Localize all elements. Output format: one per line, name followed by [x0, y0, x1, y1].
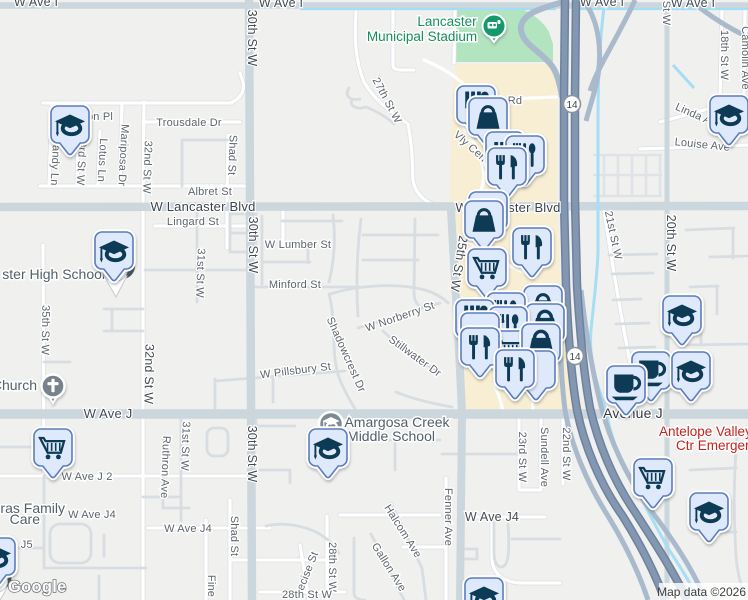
- svg-text:W Ave J4: W Ave J4: [465, 510, 519, 524]
- svg-text:Church: Church: [0, 377, 37, 393]
- svg-text:W Ave I: W Ave I: [580, 0, 624, 9]
- svg-text:30th St W: 30th St W: [246, 217, 260, 274]
- svg-text:30th St W: 30th St W: [245, 426, 259, 483]
- svg-text:Albret St: Albret St: [188, 186, 232, 198]
- svg-text:Middle School: Middle School: [347, 428, 435, 444]
- svg-text:31st St W: 31st St W: [178, 421, 192, 471]
- svg-text:14: 14: [566, 100, 578, 111]
- svg-text:St W: St W: [660, 1, 672, 26]
- svg-text:W Ave J 2: W Ave J 2: [61, 471, 112, 483]
- svg-text:W Ave I: W Ave I: [671, 0, 715, 10]
- svg-text:Lotus Ln: Lotus Ln: [95, 138, 109, 182]
- svg-text:Camolin Ave: Camolin Ave: [739, 26, 748, 90]
- svg-text:18th St W: 18th St W: [718, 30, 730, 81]
- svg-text:Sundell Ave: Sundell Ave: [538, 427, 550, 487]
- svg-text:Ctr Emergency: Ctr Emergency: [676, 438, 748, 453]
- svg-text:32nd St W: 32nd St W: [141, 344, 156, 404]
- svg-text:W Ave I: W Ave I: [14, 0, 58, 9]
- svg-text:Lingard St: Lingard St: [167, 216, 219, 228]
- svg-text:Shad St: Shad St: [228, 516, 240, 557]
- svg-text:32nd St W: 32nd St W: [140, 140, 154, 194]
- svg-text:Trousdale Dr: Trousdale Dr: [156, 117, 222, 129]
- svg-text:Fenner Ave: Fenner Ave: [442, 488, 454, 546]
- svg-text:ster High School: ster High School: [2, 266, 105, 282]
- svg-text:20th St W: 20th St W: [664, 215, 678, 272]
- svg-text:Google: Google: [8, 578, 67, 596]
- svg-text:Care: Care: [10, 511, 41, 527]
- svg-text:Lancaster: Lancaster: [417, 14, 477, 29]
- svg-text:W Lumber St: W Lumber St: [265, 239, 331, 251]
- svg-text:28th St W: 28th St W: [282, 589, 333, 600]
- svg-text:Shad St: Shad St: [225, 135, 238, 176]
- svg-text:W Ave I: W Ave I: [259, 0, 303, 10]
- svg-text:Fine: Fine: [205, 575, 217, 597]
- svg-text:Antelope Valley: Antelope Valley: [659, 424, 748, 439]
- svg-text:14: 14: [569, 352, 581, 363]
- svg-text:28th St W: 28th St W: [326, 542, 338, 593]
- svg-text:Municipal Stadium: Municipal Stadium: [367, 29, 477, 44]
- svg-text:Ruthron Ave: Ruthron Ave: [158, 436, 172, 499]
- svg-text:23rd St W: 23rd St W: [516, 432, 528, 483]
- svg-text:Minford St: Minford St: [269, 279, 321, 291]
- svg-text:35th St W: 35th St W: [39, 305, 52, 356]
- svg-text:Rd: Rd: [508, 95, 522, 107]
- svg-text:W Ave J: W Ave J: [84, 406, 133, 421]
- svg-text:W Ave J4: W Ave J4: [164, 523, 212, 535]
- svg-text:30th St W: 30th St W: [245, 10, 259, 67]
- svg-text:Map data ©2026: Map data ©2026: [657, 585, 746, 599]
- svg-text:W Ave J4: W Ave J4: [68, 509, 116, 521]
- svg-text:W Lancaster Blvd: W Lancaster Blvd: [150, 199, 255, 214]
- svg-text:22nd St W: 22nd St W: [560, 427, 572, 481]
- svg-text:31st St W: 31st St W: [193, 248, 207, 298]
